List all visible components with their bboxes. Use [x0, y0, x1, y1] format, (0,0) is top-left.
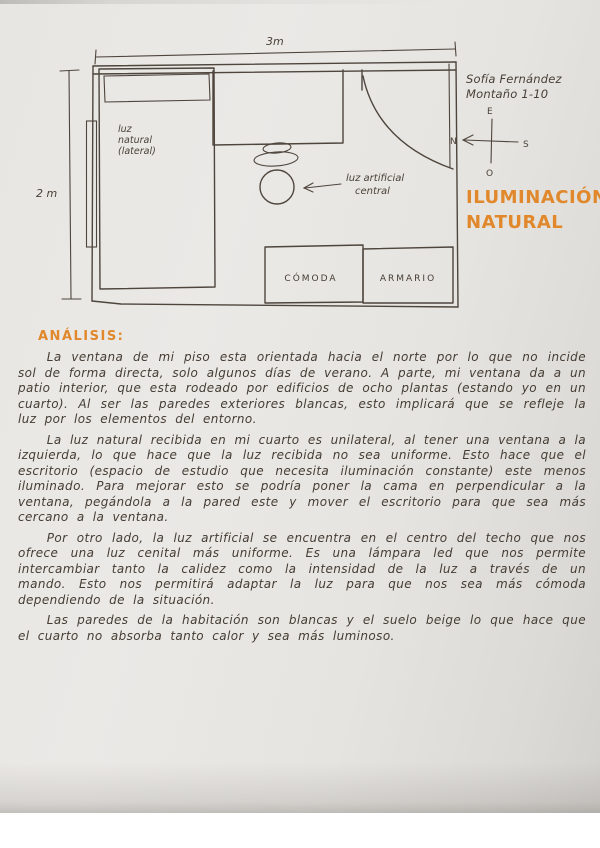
room-walls — [92, 62, 458, 307]
wardrobe: ARMARIO — [363, 247, 453, 303]
student-name-line1: Sofía Fernández — [466, 72, 596, 87]
analysis-section: ANÁLISIS: La ventana de mi piso esta ori… — [18, 329, 586, 649]
analysis-paragraph-2: La luz natural recibida en mi cuarto es … — [18, 433, 586, 526]
compass-bottom-label: O — [486, 169, 493, 179]
page-title-line1: ILUMINACIÓN — [466, 185, 600, 210]
dimension-height-label: 2 m — [36, 187, 57, 200]
door — [362, 70, 453, 169]
dimension-width: 3m — [95, 35, 456, 64]
artificial-light-label: luz artificial central — [304, 173, 404, 197]
chair — [254, 142, 299, 168]
analysis-paragraph-1: La ventana de mi piso esta orientada hac… — [18, 350, 586, 428]
wardrobe-label: ARMARIO — [380, 274, 436, 284]
ceiling-lamp — [260, 170, 294, 204]
compass-right-label: S — [523, 140, 529, 150]
photographed-paper: 3m 2 m luz natural — [0, 0, 600, 813]
floor-plan-drawing: 3m 2 m luz natural — [0, 0, 600, 330]
natural-light-label-l2: natural — [118, 135, 152, 146]
natural-light-label-l1: luz — [118, 124, 133, 135]
artificial-light-label-l2: central — [355, 186, 390, 197]
window — [87, 121, 97, 247]
dresser-label: CÓMODA — [284, 272, 337, 284]
analysis-heading: ANÁLISIS: — [38, 329, 586, 344]
artificial-light-label-l1: luz artificial — [346, 173, 404, 184]
dresser: CÓMODA — [265, 245, 363, 303]
page-title-line2: NATURAL — [466, 210, 600, 235]
photo-bottom-shadow — [0, 762, 600, 813]
natural-light-label-l3: (lateral) — [118, 146, 156, 157]
bed — [99, 68, 215, 289]
compass: E O N S — [450, 107, 529, 179]
compass-top-label: E — [487, 107, 493, 117]
analysis-paragraph-4: Las paredes de la habitación son blancas… — [18, 613, 586, 644]
desk — [213, 70, 343, 145]
scanned-homework-page: { "student": { "name_line1": "Sofía Fern… — [0, 0, 600, 848]
dimension-height: 2 m — [36, 70, 81, 299]
compass-left-label: N — [450, 137, 457, 147]
analysis-paragraph-3: Por otro lado, la luz artificial se encu… — [18, 531, 586, 609]
page-title: ILUMINACIÓN NATURAL — [466, 185, 600, 235]
student-name: Sofía Fernández Montaño 1-10 — [466, 72, 596, 102]
dimension-width-label: 3m — [266, 35, 284, 48]
natural-light-label: luz natural (lateral) — [118, 124, 156, 157]
student-name-line2: Montaño 1-10 — [466, 87, 596, 102]
